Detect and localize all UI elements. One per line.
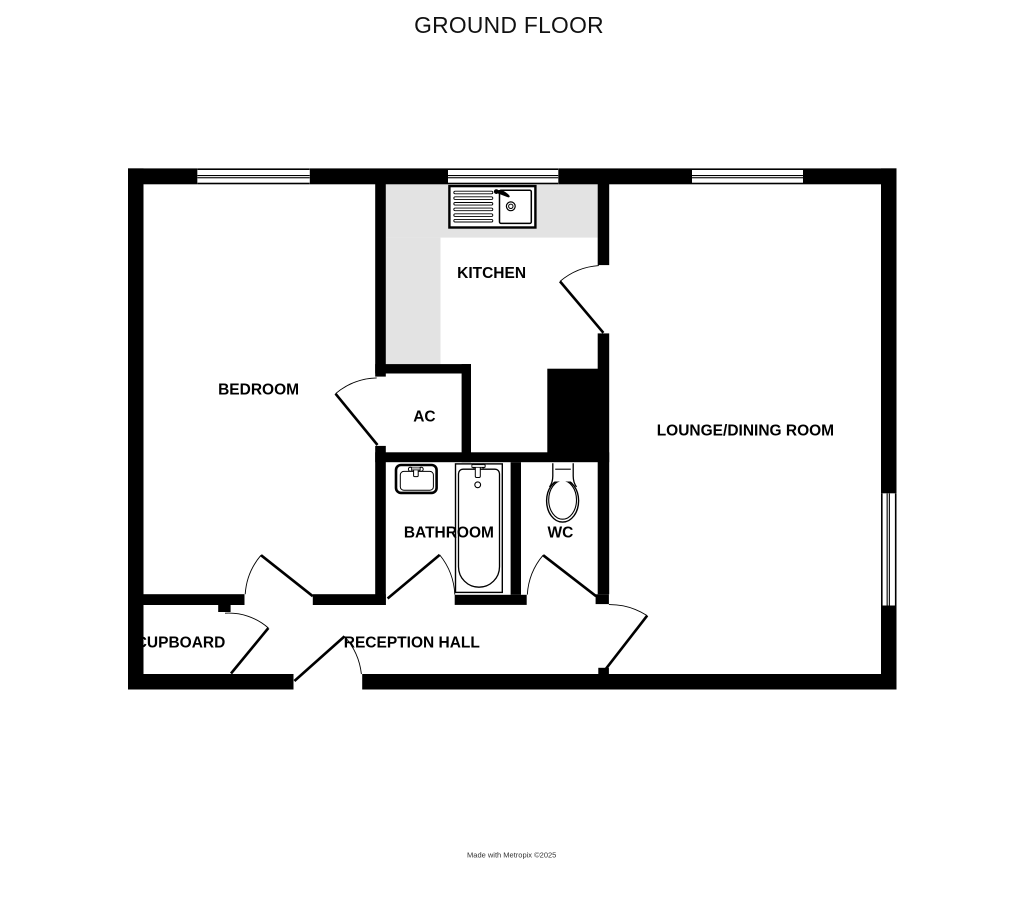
svg-text:AC: AC <box>413 409 435 426</box>
svg-text:LOUNGE/DINING ROOM: LOUNGE/DINING ROOM <box>657 423 834 440</box>
svg-text:BATHROOM: BATHROOM <box>404 524 494 541</box>
svg-text:BEDROOM: BEDROOM <box>218 381 299 398</box>
svg-text:WC: WC <box>547 524 573 541</box>
svg-text:CUPBOARD: CUPBOARD <box>136 634 226 651</box>
svg-text:KITCHEN: KITCHEN <box>457 265 526 282</box>
svg-text:RECEPTION HALL: RECEPTION HALL <box>344 634 480 651</box>
svg-text:Made with Metropix ©2025: Made with Metropix ©2025 <box>467 851 556 860</box>
svg-text:GROUND FLOOR: GROUND FLOOR <box>414 12 604 38</box>
